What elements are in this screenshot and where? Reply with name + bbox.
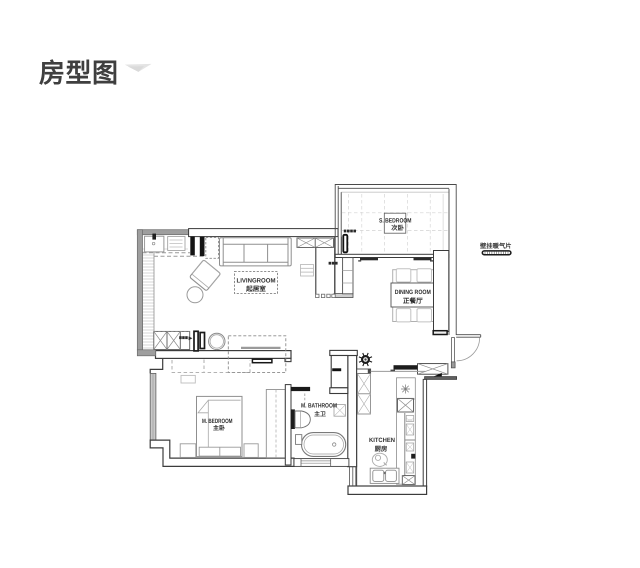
svg-text:正餐厅: 正餐厅: [403, 297, 423, 305]
svg-text:主卧: 主卧: [213, 424, 225, 432]
svg-text:厨房: 厨房: [375, 445, 388, 453]
svg-text:次卧: 次卧: [391, 224, 404, 232]
svg-text:LIVINGROOM: LIVINGROOM: [237, 278, 276, 285]
svg-text:DINING ROOM: DINING ROOM: [395, 289, 431, 296]
svg-text:起居室: 起居室: [245, 285, 266, 293]
svg-text:M. BATHROOM: M. BATHROOM: [301, 402, 337, 409]
svg-text:M. BEDROOM: M. BEDROOM: [202, 418, 233, 425]
svg-text:KITCHEN: KITCHEN: [369, 437, 396, 444]
svg-text:壁挂暖气片: 壁挂暖气片: [479, 242, 511, 250]
svg-text:主卫: 主卫: [314, 410, 326, 418]
svg-text:S. BEDROOM: S. BEDROOM: [379, 217, 412, 224]
